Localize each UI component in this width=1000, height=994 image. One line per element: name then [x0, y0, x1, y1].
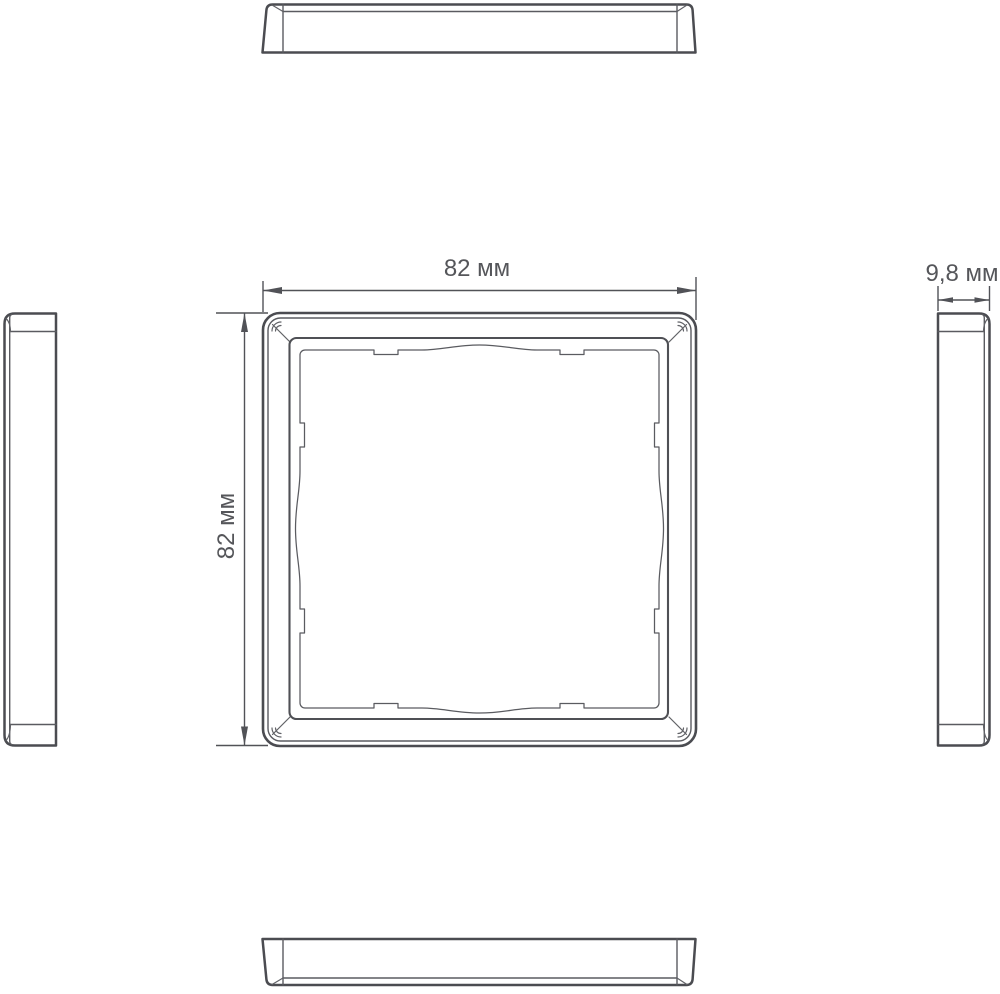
bottom-view — [263, 939, 696, 985]
front-window-opening — [296, 345, 664, 713]
technical-drawing: 82 мм 82 мм 9,8 мм — [0, 0, 1000, 994]
corner-bevel-line — [669, 325, 687, 343]
corner-arc — [678, 322, 687, 331]
width-dimension-label: 82 мм — [444, 255, 510, 282]
arrowhead-right — [677, 287, 696, 294]
bottom-view-left-corner-chamfer — [272, 978, 283, 985]
right-side-outline — [938, 314, 990, 746]
width-dimension: 82 мм — [263, 255, 696, 320]
arrowhead-left — [263, 287, 282, 294]
right-side-view — [938, 314, 990, 746]
left-side-front-face-edge — [10, 314, 12, 744]
corner-arc — [272, 728, 281, 737]
corner-bevel-line — [273, 325, 291, 343]
bottom-view-right-corner-chamfer — [677, 978, 687, 985]
corner-bevel-line — [669, 717, 687, 735]
top-view-left-corner-chamfer — [272, 5, 283, 12]
front-corner-details — [272, 322, 687, 737]
front-view — [263, 313, 696, 746]
corner-arc — [272, 322, 281, 331]
arrowhead-left — [938, 297, 953, 303]
depth-dimension-label: 9,8 мм — [925, 260, 998, 287]
corner-bevel-line — [273, 717, 291, 735]
left-side-outline — [5, 314, 57, 746]
arrowhead-up — [241, 313, 248, 332]
left-side-view — [5, 314, 57, 746]
depth-dimension: 9,8 мм — [925, 260, 998, 311]
corner-arc — [678, 728, 687, 737]
arrowhead-right — [975, 297, 990, 303]
top-view-right-corner-chamfer — [677, 5, 687, 12]
front-outer-outline — [263, 313, 696, 746]
height-dimension-label: 82 мм — [213, 493, 240, 559]
height-dimension: 82 мм — [213, 313, 268, 746]
arrowhead-down — [241, 727, 248, 746]
front-inner-plateau — [290, 338, 669, 719]
front-outer-offset-line — [268, 318, 691, 741]
right-side-front-face-edge — [982, 314, 984, 744]
top-view — [263, 5, 696, 53]
